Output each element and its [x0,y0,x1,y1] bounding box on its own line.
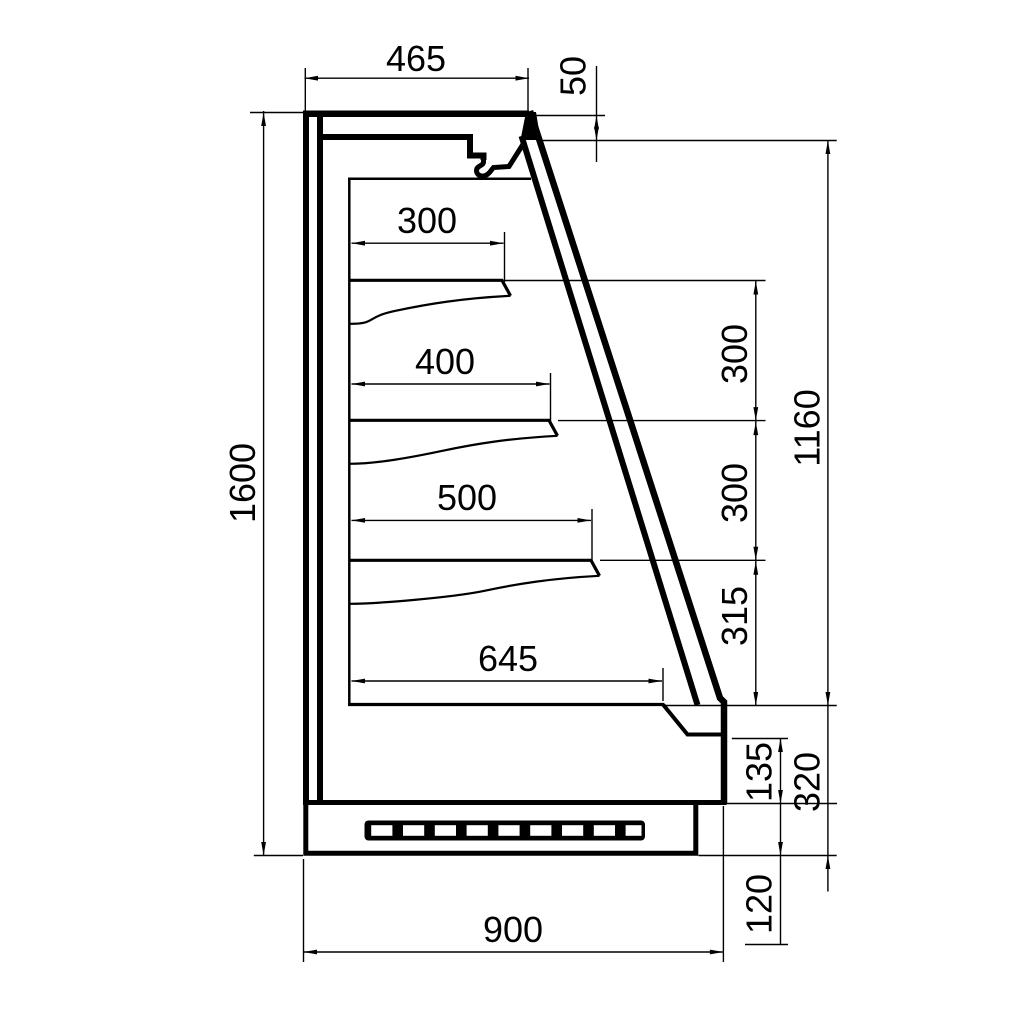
svg-text:300: 300 [714,324,755,384]
svg-text:120: 120 [739,874,780,934]
svg-text:315: 315 [714,586,755,646]
svg-text:50: 50 [553,56,594,96]
svg-text:500: 500 [437,477,497,518]
svg-text:135: 135 [739,742,780,802]
svg-text:1160: 1160 [787,389,828,466]
svg-text:645: 645 [478,638,538,679]
svg-text:900: 900 [483,909,543,950]
svg-text:1600: 1600 [222,443,263,523]
svg-text:300: 300 [397,200,457,241]
svg-text:400: 400 [415,341,475,382]
svg-text:300: 300 [714,463,755,523]
svg-text:465: 465 [386,38,446,79]
